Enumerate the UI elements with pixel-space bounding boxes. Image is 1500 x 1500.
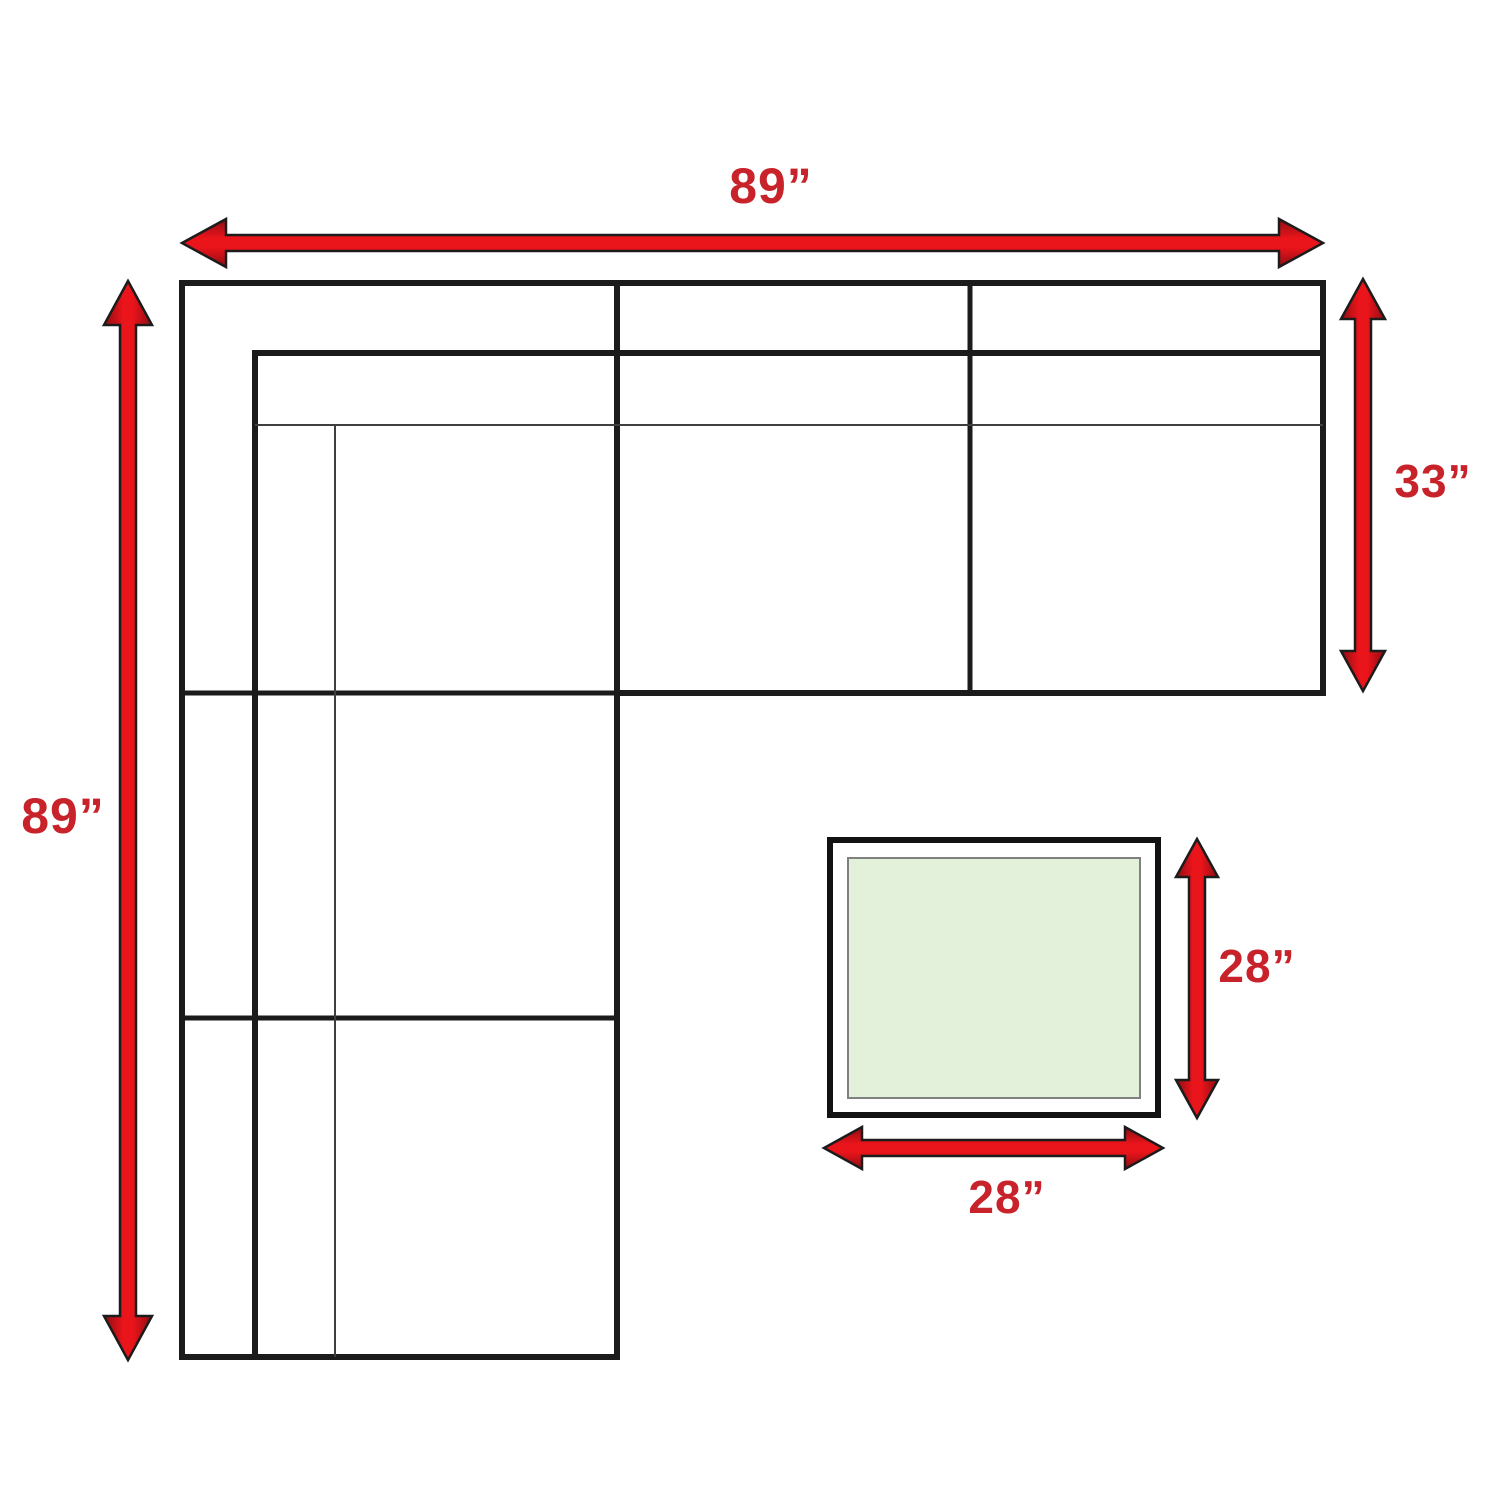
sofa-outer-outline — [182, 283, 1323, 1357]
dimension-arrow-ottoman-width — [824, 1127, 1163, 1169]
dimension-arrow-chaise-depth — [1341, 279, 1385, 691]
sofa-dimension-diagram: 89” 89” 33” 28” 28” — [0, 0, 1500, 1500]
label-sofa-depth: 89” — [21, 791, 105, 841]
dimension-arrow-sofa-width — [182, 219, 1323, 267]
label-chaise-depth: 33” — [1394, 458, 1471, 504]
label-sofa-width: 89” — [729, 161, 813, 211]
dimension-arrow-ottoman-depth — [1176, 839, 1218, 1118]
diagram-drawing — [0, 0, 1500, 1500]
label-ottoman-depth: 28” — [1218, 943, 1295, 989]
label-ottoman-width: 28” — [968, 1174, 1045, 1220]
ottoman-top-cushion — [848, 858, 1140, 1098]
dimension-arrow-sofa-depth — [104, 281, 152, 1360]
